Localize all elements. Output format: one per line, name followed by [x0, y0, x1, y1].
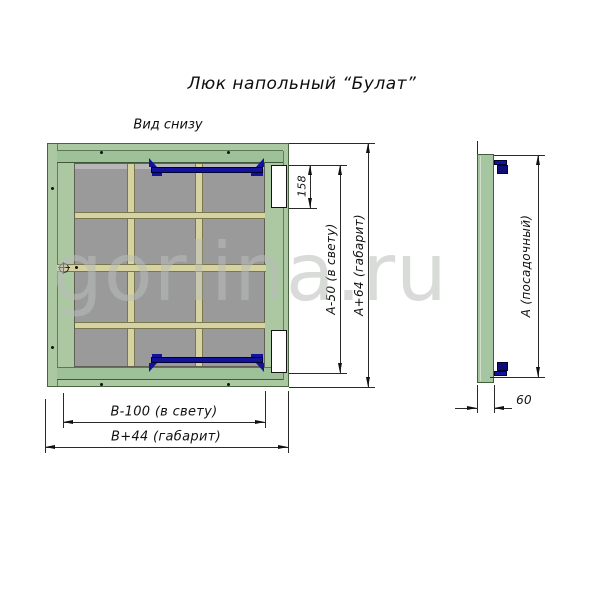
dim-extension-line — [288, 391, 289, 453]
dim-extension-line — [265, 391, 266, 428]
dim-label-60: 60 — [516, 393, 532, 407]
side-profile-highlight — [480, 156, 481, 381]
lid-flange-top — [57, 150, 283, 163]
stiffener-rib-horizontal-3 — [75, 322, 265, 329]
drawing-title: Люк напольный “Булат” — [188, 74, 417, 94]
latch-end-bottom-left — [149, 363, 157, 372]
dimension-arrow — [278, 445, 288, 449]
fastener-dot — [100, 383, 103, 386]
fastener-dot — [51, 187, 54, 190]
dimension-arrow — [308, 165, 312, 175]
dim-extension-line — [289, 208, 317, 209]
dim-label-b-clear: В-100 (в свету) — [110, 405, 217, 420]
dimension-arrow — [536, 367, 540, 377]
dim-label-b-overall: В+44 (габарит) — [111, 430, 221, 445]
latch-hook-bottom-right — [251, 354, 263, 357]
latch-end-top-left — [149, 158, 157, 167]
dimension-arrow — [308, 198, 312, 208]
dim-extension-line — [490, 377, 545, 378]
dimension-arrow — [536, 155, 540, 165]
dim-extension-line — [289, 387, 375, 388]
dim-line-b-clear — [63, 422, 265, 423]
dim-label-158: 158 — [296, 175, 309, 197]
fastener-dot — [51, 346, 54, 349]
dimension-arrow — [467, 406, 477, 410]
view-label: Вид снизу — [133, 118, 202, 133]
fastener-dot — [227, 383, 230, 386]
latch-hook-top-left — [152, 173, 162, 176]
dim-extension-line — [477, 141, 478, 154]
dimension-arrow — [366, 143, 370, 153]
dim-extension-line — [477, 385, 478, 413]
dimension-arrow — [366, 377, 370, 387]
hinge-bottom — [271, 330, 287, 373]
fastener-dot — [227, 151, 230, 154]
dimension-arrow — [494, 406, 504, 410]
dimension-arrow — [338, 363, 342, 373]
dimension-arrow — [255, 420, 265, 424]
stiffener-rib-horizontal-1 — [75, 212, 265, 219]
latch-bar-bottom — [151, 357, 263, 363]
side-hinge-roller-bottom — [497, 362, 508, 371]
latch-end-top-right — [256, 158, 264, 167]
dim-line-b-overall — [45, 447, 288, 448]
dimension-arrow — [63, 420, 73, 424]
hinge-top — [271, 165, 287, 208]
dim-extension-line — [289, 143, 375, 144]
latch-hook-bottom-left — [152, 354, 162, 357]
latch-bar-top — [151, 167, 263, 173]
dim-label-a-seat: А (посадочный) — [519, 215, 533, 318]
latch-end-bottom-right — [256, 363, 264, 372]
dimension-arrow — [45, 445, 55, 449]
fastener-dot — [100, 151, 103, 154]
latch-hook-top-right — [251, 173, 263, 176]
drawing-sheet: Люк напольный “Булат” Вид снизу — [0, 0, 600, 600]
side-hinge-roller-top — [497, 165, 508, 174]
dimension-arrow — [338, 165, 342, 175]
watermark-text: gorlina.ru — [52, 226, 448, 319]
dim-line-a-seat — [538, 155, 539, 377]
lid-flange-bottom — [57, 367, 283, 380]
dim-extension-line — [289, 373, 347, 374]
side-hinge-bracket-bottom — [494, 371, 507, 376]
